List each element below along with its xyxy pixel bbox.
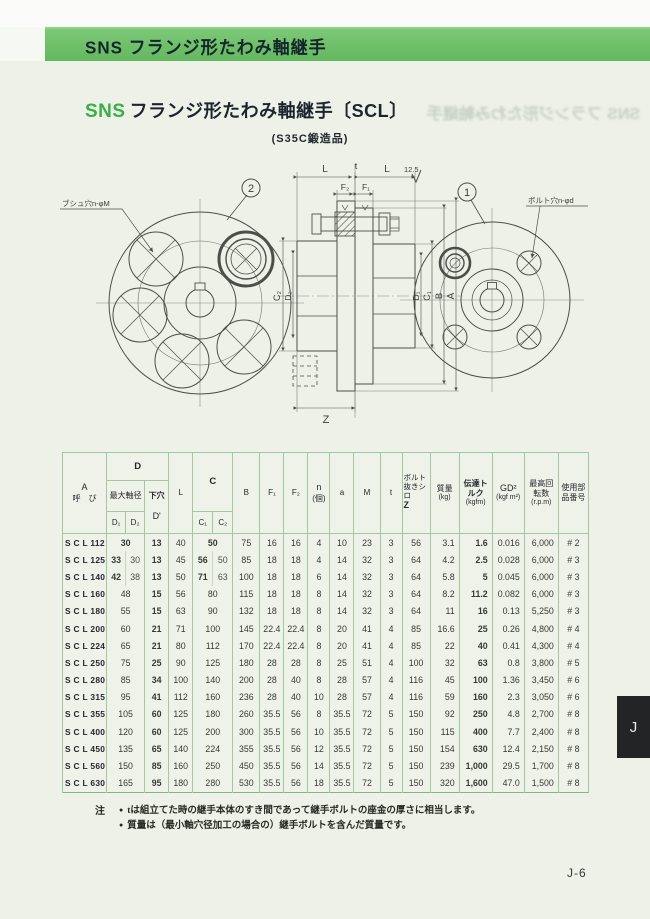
header-b: B <box>233 453 260 534</box>
cell: 12 <box>308 740 330 757</box>
cell: 2,700 <box>524 706 558 723</box>
cell: 4 <box>380 620 402 637</box>
material-subtitle: (S35C鍛造品) <box>85 130 535 146</box>
cell: 28 <box>330 689 354 706</box>
cell: 1.6 <box>459 534 492 552</box>
cell: 4.8 <box>492 706 524 723</box>
header-t: t <box>380 453 402 534</box>
cell: 57 <box>354 672 380 689</box>
cell: 42 <box>107 568 126 585</box>
cell: 35.5 <box>330 723 354 740</box>
right-flange-view: 1 ボルト穴n-φd <box>400 183 588 392</box>
cell: 150 <box>402 740 430 757</box>
cell: 40 <box>284 672 308 689</box>
dim-left: C₂ D₂ <box>272 241 297 351</box>
cell: 180 <box>169 775 193 793</box>
cell: 32 <box>354 551 380 568</box>
cell: 3 <box>380 603 402 620</box>
header-max-shaft: 最大軸径 <box>107 481 145 512</box>
cell: 2.3 <box>492 689 524 706</box>
cell: 5,250 <box>524 603 558 620</box>
cell: 85 <box>402 620 430 637</box>
cell: 150 <box>107 757 145 774</box>
cell: 0.082 <box>492 586 524 603</box>
cell: 4,800 <box>524 620 558 637</box>
cell: 72 <box>354 706 380 723</box>
dim-b: B <box>434 293 445 299</box>
cell: 3 <box>380 586 402 603</box>
cell: 125 <box>169 706 193 723</box>
cell: 14 <box>308 757 330 774</box>
brand-logo-text: SNS <box>85 101 126 122</box>
cell: 21 <box>145 637 169 654</box>
table-row: S C L 1404238135071631001818614323645.85… <box>63 568 589 585</box>
cell: 3 <box>380 568 402 585</box>
table-row: S C L 3551056012518026035.556835.5725150… <box>63 706 589 723</box>
cell: 8 <box>308 586 330 603</box>
dim-d1: D₁ <box>411 291 421 300</box>
table-row: S C L 250752590125180282882551410032630.… <box>63 654 589 671</box>
cell: 18 <box>308 775 330 793</box>
cell: 239 <box>430 757 459 774</box>
cell: # 8 <box>558 757 588 774</box>
cell: 8 <box>308 637 330 654</box>
cell: 30 <box>126 551 145 568</box>
cell: 125 <box>169 723 193 740</box>
cell: 0.41 <box>492 637 524 654</box>
cell: 22 <box>430 637 459 654</box>
cell: 35.5 <box>260 757 284 774</box>
cell: 11 <box>430 603 459 620</box>
cell: 18 <box>284 586 308 603</box>
table-row: S C L 2808534100140200284082857411645100… <box>63 672 589 689</box>
cell: 40 <box>459 637 492 654</box>
cell: 14 <box>330 551 354 568</box>
cell: 13 <box>145 551 169 568</box>
cell: 38 <box>126 568 145 585</box>
surface-finish-mark: 12.5 <box>404 165 421 182</box>
bushing-detail <box>219 232 273 286</box>
cell: 18 <box>260 568 284 585</box>
cell: 3.1 <box>430 534 459 552</box>
cell: 25 <box>145 654 169 671</box>
cell: 180 <box>233 654 260 671</box>
cell: 56 <box>284 723 308 740</box>
dim-c1: C₁ <box>422 291 432 301</box>
cell: 1,600 <box>459 775 492 793</box>
cell: 59 <box>430 689 459 706</box>
cell: 28 <box>260 654 284 671</box>
cell: 8 <box>308 654 330 671</box>
header-mass: 質量(kg) <box>430 453 459 534</box>
header-d1: D₁ <box>107 512 126 534</box>
table-row: S C L 160481556801151818814323648.211.20… <box>63 586 589 603</box>
bush-ghost <box>293 356 317 386</box>
cell: 22.4 <box>284 637 308 654</box>
cell: 85 <box>107 672 145 689</box>
cell: 85 <box>402 637 430 654</box>
cell: S C L 450 <box>63 740 107 757</box>
cell: 12.4 <box>492 740 524 757</box>
cell: S C L 355 <box>63 706 107 723</box>
cell: 56 <box>284 740 308 757</box>
spec-table: A 呼 び D L C B F₁ F₂ n(個) a M t ボルト抜きシロ Z… <box>62 452 589 793</box>
section-view: L t L F₂ F₁ C₂ D₂ <box>272 161 463 426</box>
cell: 236 <box>233 689 260 706</box>
cell: 5 <box>380 757 402 774</box>
cell: # 8 <box>558 706 588 723</box>
cell: 160 <box>193 689 233 706</box>
cell: 320 <box>430 775 459 793</box>
cell: 0.13 <box>492 603 524 620</box>
cell: S C L 400 <box>63 723 107 740</box>
cell: 64 <box>402 586 430 603</box>
cell: 5 <box>459 568 492 585</box>
cell: S C L 315 <box>63 689 107 706</box>
cell: 154 <box>430 740 459 757</box>
table-row: S C L 4501356514022435535.5561235.572515… <box>63 740 589 757</box>
page-number: J-6 <box>567 866 587 880</box>
cell: 60 <box>145 706 169 723</box>
cell: 0.045 <box>492 568 524 585</box>
cell: 200 <box>193 723 233 740</box>
cell: 80 <box>193 586 233 603</box>
cell: 3,800 <box>524 654 558 671</box>
header-torque: 伝達トルク(kgfm) <box>459 453 492 534</box>
callout-bolt-hole-text: ボルト穴n-φd <box>528 195 574 205</box>
finish-mark-left <box>342 205 348 210</box>
table-row: S C L 125333013455650851818414323644.22.… <box>63 551 589 568</box>
cell: 140 <box>193 672 233 689</box>
cell: 35.5 <box>330 706 354 723</box>
cell: 18 <box>284 568 308 585</box>
cell: # 3 <box>558 551 588 568</box>
balloon-1-number: 1 <box>464 187 470 199</box>
cell: 4 <box>308 551 330 568</box>
callout-bolt-hole: ボルト穴n-φd <box>526 195 588 258</box>
cell: 41 <box>354 637 380 654</box>
cell: 72 <box>354 775 380 793</box>
table-row: S C L 22465218011217022.422.482041485224… <box>63 637 589 654</box>
cell: 22.4 <box>260 620 284 637</box>
page-top-margin <box>0 0 650 27</box>
table-row: S C L 6301659518028053035.5561835.572515… <box>63 775 589 793</box>
table-row: S C L 3159541112160236284010285741165916… <box>63 689 589 706</box>
cell: 51 <box>354 654 380 671</box>
header-d-group: D <box>107 453 169 481</box>
cell: 5 <box>380 740 402 757</box>
cell: 280 <box>193 775 233 793</box>
cell: 180 <box>193 706 233 723</box>
cell: 64 <box>402 603 430 620</box>
cell: 41 <box>354 620 380 637</box>
cell: 5.8 <box>430 568 459 585</box>
cell: 32 <box>354 568 380 585</box>
cell: 135 <box>107 740 145 757</box>
cell: 0.028 <box>492 551 524 568</box>
cell: 132 <box>233 603 260 620</box>
cell: 224 <box>193 740 233 757</box>
cell: 63 <box>169 603 193 620</box>
cell: 56 <box>193 551 213 568</box>
cell: 34 <box>145 672 169 689</box>
cell: 250 <box>459 706 492 723</box>
cell: 3,050 <box>524 689 558 706</box>
dim-z-label: Z <box>323 414 330 426</box>
cell: 105 <box>107 706 145 723</box>
cell: 56 <box>284 706 308 723</box>
cell: 63 <box>213 568 233 585</box>
dim-f2: F₂ <box>341 182 350 192</box>
cell: S C L 560 <box>63 757 107 774</box>
cell: 48 <box>107 586 145 603</box>
cell: 45 <box>430 672 459 689</box>
cell: 60 <box>107 620 145 637</box>
cell: # 3 <box>558 603 588 620</box>
cell: 72 <box>354 740 380 757</box>
dim-l-left: L <box>322 164 328 175</box>
cell: 64 <box>402 568 430 585</box>
cell: 92 <box>430 706 459 723</box>
cell: 150 <box>402 775 430 793</box>
cell: 6,000 <box>524 534 558 552</box>
cell: 32 <box>430 654 459 671</box>
cell: 65 <box>145 740 169 757</box>
dim-t: t <box>355 161 358 171</box>
cell: 18 <box>284 551 308 568</box>
cell: 2,400 <box>524 723 558 740</box>
cell: 150 <box>402 723 430 740</box>
cell: 90 <box>169 654 193 671</box>
header-gd2: GD²(kgf m²) <box>492 453 524 534</box>
cell: 120 <box>107 723 145 740</box>
callout-bush-hole: ブシュ穴n-φM <box>60 198 153 252</box>
cell: 57 <box>354 689 380 706</box>
cell: 3,450 <box>524 672 558 689</box>
cell: 6,000 <box>524 551 558 568</box>
cell: 33 <box>107 551 126 568</box>
cell: 35.5 <box>260 706 284 723</box>
cell: 85 <box>233 551 260 568</box>
cell: 8 <box>308 603 330 620</box>
header-c-group: C <box>193 453 233 512</box>
cell: S C L 160 <box>63 586 107 603</box>
table-row: S C L 4001206012520030035.5561035.572515… <box>63 723 589 740</box>
cell: 8 <box>308 706 330 723</box>
cell: 32 <box>354 586 380 603</box>
cell: S C L 250 <box>63 654 107 671</box>
dim-LtL: L t L <box>297 161 415 244</box>
section-banner: SNS フランジ形たわみ軸継手 <box>45 27 650 61</box>
technical-drawing: 2 ブシュ穴n-φM <box>60 148 590 436</box>
cell: 20 <box>330 620 354 637</box>
cell: # 5 <box>558 654 588 671</box>
table-row: S C L 5601508516025045035.5561435.572515… <box>63 757 589 774</box>
cell: 100 <box>233 568 260 585</box>
cell: S C L 180 <box>63 603 107 620</box>
cell: 13 <box>145 534 169 552</box>
cell: 28 <box>330 672 354 689</box>
cell: 28 <box>260 672 284 689</box>
cell: 23 <box>354 534 380 552</box>
cell: 35.5 <box>260 723 284 740</box>
cell: 18 <box>260 586 284 603</box>
cell: 22.4 <box>260 637 284 654</box>
cell: # 8 <box>558 740 588 757</box>
dim-f1: F₁ <box>362 182 370 192</box>
table-row: S C L 11230134050751616410233563.11.60.0… <box>63 534 589 552</box>
cell: 260 <box>233 706 260 723</box>
cell: 56 <box>284 775 308 793</box>
cell: 95 <box>145 775 169 793</box>
cell: 2.5 <box>459 551 492 568</box>
cell: 140 <box>169 740 193 757</box>
cell: 28 <box>260 689 284 706</box>
cell: 115 <box>233 586 260 603</box>
header-m: M <box>354 453 380 534</box>
dim-a: A <box>446 292 457 299</box>
cell: 10 <box>330 534 354 552</box>
cell: 40 <box>169 534 193 552</box>
balloon-1: 1 <box>458 183 485 224</box>
cell: 63 <box>459 654 492 671</box>
cell: 50 <box>213 551 233 568</box>
coupling-drawing-svg: 2 ブシュ穴n-φM <box>60 148 590 436</box>
cell: 125 <box>193 654 233 671</box>
cell: 14 <box>330 603 354 620</box>
cell: 90 <box>193 603 233 620</box>
cell: 5 <box>380 706 402 723</box>
cell: 4.2 <box>430 551 459 568</box>
cell: 47.0 <box>492 775 524 793</box>
cell: 95 <box>107 689 145 706</box>
cell: 112 <box>193 637 233 654</box>
cell: 4 <box>308 534 330 552</box>
cell: 300 <box>233 723 260 740</box>
balloon-2: 2 <box>227 179 260 220</box>
cell: 16 <box>284 534 308 552</box>
header-a2: a <box>330 453 354 534</box>
cell: 71 <box>193 568 213 585</box>
cell: 4 <box>380 654 402 671</box>
left-flange-view: 2 ブシュ穴n-φM <box>60 179 304 407</box>
cell: 8.2 <box>430 586 459 603</box>
cell: 2,150 <box>524 740 558 757</box>
cell: 40 <box>284 689 308 706</box>
header-d2: D₂ <box>126 512 145 534</box>
cell: 0.26 <box>492 620 524 637</box>
cell: S C L 140 <box>63 568 107 585</box>
note-label: 注 <box>95 804 105 833</box>
cell: 35.5 <box>330 740 354 757</box>
cell: 18 <box>260 551 284 568</box>
cell: 35.5 <box>260 740 284 757</box>
cell: 21 <box>145 620 169 637</box>
dim-d2: D₂ <box>283 291 293 300</box>
cell: 25 <box>459 620 492 637</box>
cell: 75 <box>107 654 145 671</box>
cell: 0.016 <box>492 534 524 552</box>
page-left-margin <box>0 27 45 61</box>
cell: 1,500 <box>524 775 558 793</box>
cell: 7.7 <box>492 723 524 740</box>
cell: 170 <box>233 637 260 654</box>
section-index-letter: J <box>630 719 638 736</box>
dim-l-right: L <box>384 164 390 175</box>
cell: # 6 <box>558 672 588 689</box>
cell: 160 <box>169 757 193 774</box>
cell: 1.36 <box>492 672 524 689</box>
footnotes: 注 ●tは組立てた時の継手本体のすき間であって継手ボルトの座金の厚さに相当します… <box>95 804 480 833</box>
cell: 71 <box>169 620 193 637</box>
cell: 100 <box>459 672 492 689</box>
cell: 35.5 <box>260 775 284 793</box>
cell: # 3 <box>558 586 588 603</box>
cell: 29.5 <box>492 757 524 774</box>
cell: 5 <box>380 775 402 793</box>
cell: 56 <box>284 757 308 774</box>
cell: 35.5 <box>330 775 354 793</box>
cell: 4,300 <box>524 637 558 654</box>
cell: 0.8 <box>492 654 524 671</box>
cell: 18 <box>260 603 284 620</box>
spec-table-section: A 呼 び D L C B F₁ F₂ n(個) a M t ボルト抜きシロ Z… <box>62 452 602 793</box>
cell: 112 <box>169 689 193 706</box>
cell: 20 <box>330 637 354 654</box>
header-z: ボルト抜きシロ Z <box>402 453 430 534</box>
table-row: S C L 20060217110014522.422.48204148516.… <box>63 620 589 637</box>
cell: 116 <box>402 672 430 689</box>
cell: 41 <box>145 689 169 706</box>
cell: 3 <box>380 551 402 568</box>
balloon-2-number: 2 <box>248 183 254 195</box>
cell: 100 <box>193 620 233 637</box>
cell: 15 <box>145 586 169 603</box>
cell: 85 <box>145 757 169 774</box>
header-f2: F₂ <box>284 453 308 534</box>
header-call: A 呼 び <box>63 453 107 534</box>
cell: 530 <box>233 775 260 793</box>
cell: 6,000 <box>524 568 558 585</box>
cell: 32 <box>354 603 380 620</box>
header-pilot: 下穴 D' <box>145 481 169 534</box>
cell: # 4 <box>558 637 588 654</box>
cell: 400 <box>459 723 492 740</box>
cell: 30 <box>107 534 145 552</box>
cell: 1,700 <box>524 757 558 774</box>
cell: 64 <box>402 551 430 568</box>
cell: # 4 <box>558 620 588 637</box>
cell: 75 <box>233 534 260 552</box>
header-c1: C₁ <box>193 512 213 534</box>
cell: S C L 200 <box>63 620 107 637</box>
header-l: L <box>169 453 193 534</box>
cell: S C L 112 <box>63 534 107 552</box>
table-row: S C L 1805515639013218188143236411160.13… <box>63 603 589 620</box>
cell: S C L 224 <box>63 637 107 654</box>
cell: 16 <box>260 534 284 552</box>
cell: 80 <box>169 637 193 654</box>
cell: 115 <box>430 723 459 740</box>
dim-c2: C₂ <box>272 291 282 301</box>
cell: 160 <box>459 689 492 706</box>
header-part: 使用部品番号 <box>558 453 588 534</box>
cell: 72 <box>354 757 380 774</box>
cell: 630 <box>459 740 492 757</box>
cell: 200 <box>233 672 260 689</box>
cell: # 8 <box>558 723 588 740</box>
section-index-tab[interactable]: J <box>617 696 650 758</box>
